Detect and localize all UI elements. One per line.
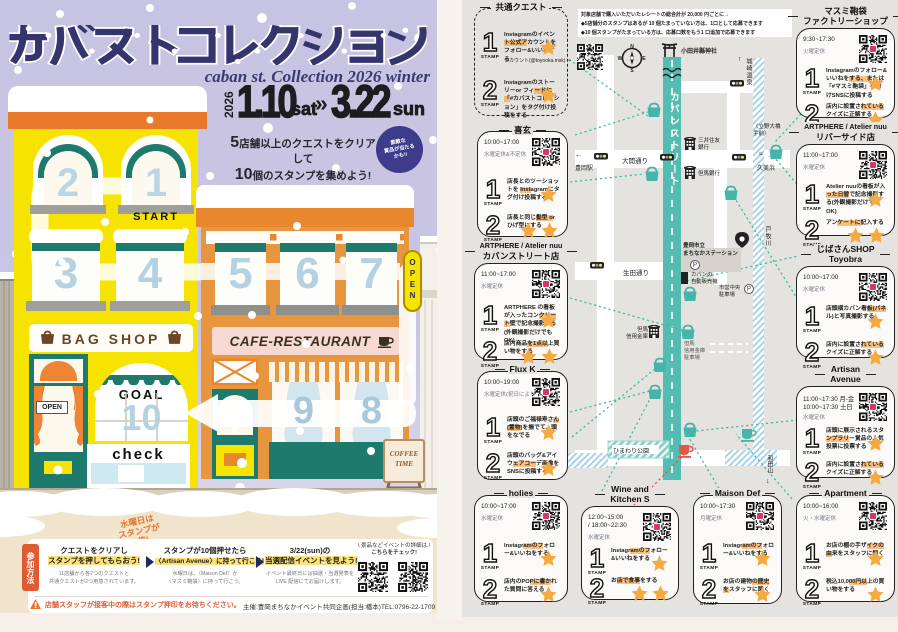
svg-text:E: E bbox=[642, 56, 646, 62]
svg-text:N: N bbox=[630, 44, 634, 50]
svg-text:S: S bbox=[630, 68, 634, 73]
svg-text:W: W bbox=[618, 56, 623, 62]
